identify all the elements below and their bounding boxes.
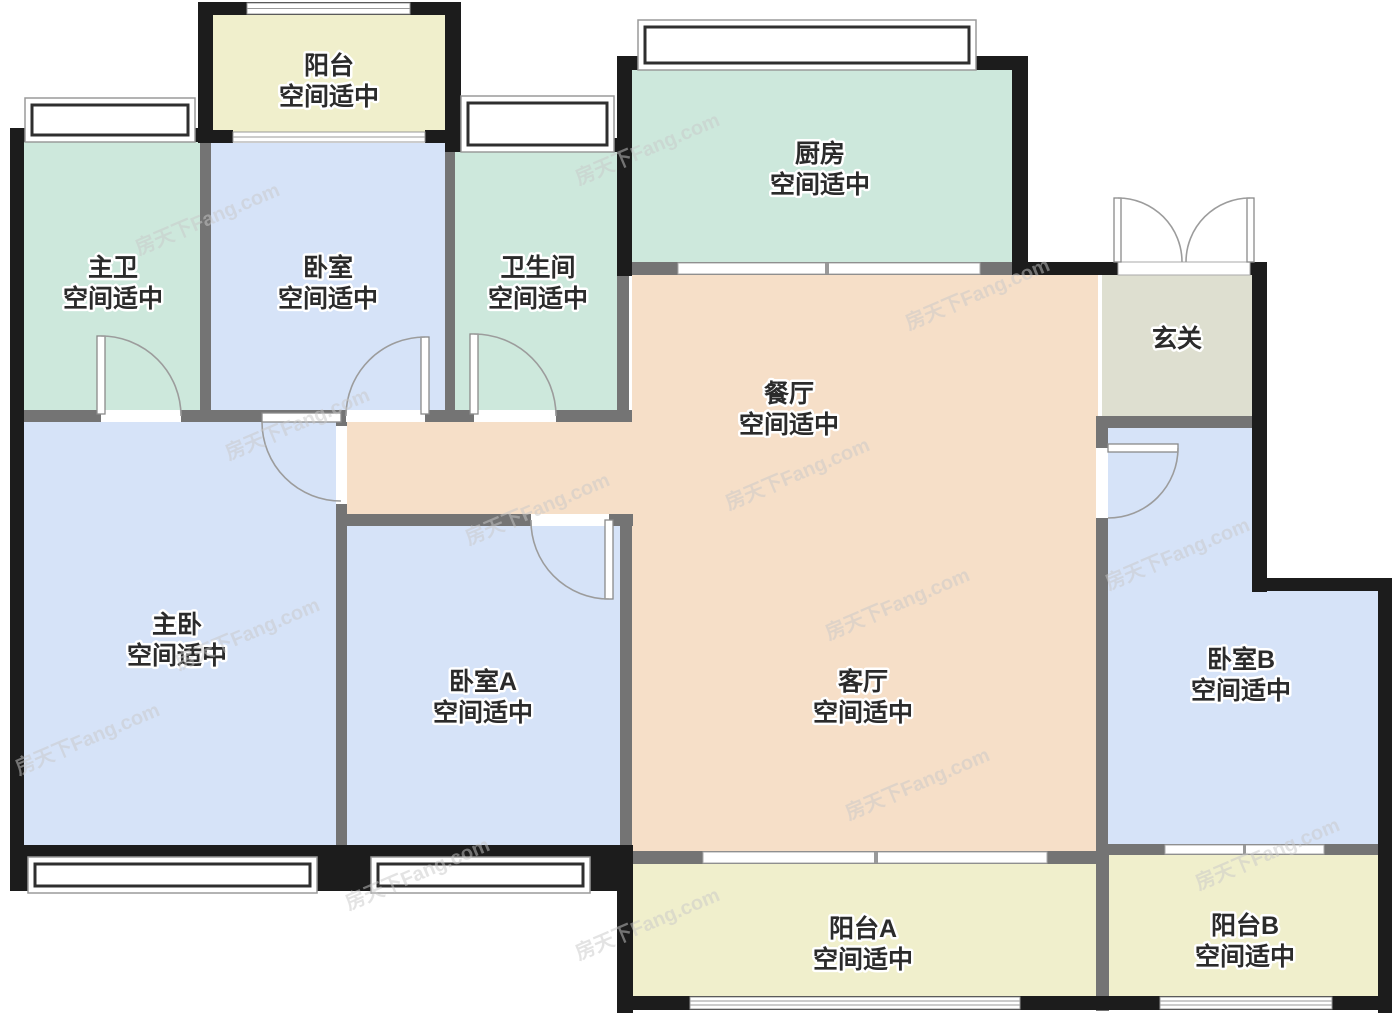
room-label-master-bedroom: 主卧 [152,611,202,639]
door-opening [336,426,347,504]
door-leaf [470,334,478,414]
wall-segment [617,266,629,422]
room-label-balcony-top: 阳台 [304,51,354,80]
door-leaf [97,336,105,414]
room-label-master-bath-status: 空间适中 [63,284,163,313]
room-label-bedroom-top: 卧室 [303,253,353,282]
window [645,27,969,63]
wall-segment [445,152,455,414]
door-opening [101,410,181,422]
wall-segment [425,130,461,143]
room-label-kitchen-status: 空间适中 [770,170,870,199]
wall-segment [1252,262,1267,592]
wall-segment [1012,56,1028,275]
room-label-bedroom-a-status: 空间适中 [433,698,533,727]
wall-segment [315,845,373,891]
room-label-bedroom-a: 卧室A [449,667,517,696]
room-label-living-status: 空间适中 [813,698,913,727]
wall-segment [445,2,461,152]
wall-segment [1096,416,1262,428]
room-label-balcony-top-status: 空间适中 [279,82,379,111]
room-label-living: 客厅 [838,667,888,696]
door-opening [474,410,556,422]
door-leaf [605,520,613,599]
room-bedroom-b-area [1108,428,1378,846]
door-leaf [421,337,429,414]
door-leaf [1108,444,1178,452]
wall-segment [198,2,213,143]
window [690,997,1020,1009]
room-label-dining-status: 空间适中 [739,410,839,439]
sliding-notch [825,263,829,274]
door-opening [346,410,425,422]
room-hallway-area [340,415,632,516]
window [468,103,607,145]
wall-segment [1096,851,1109,1011]
room-label-balcony-b-status: 空间适中 [1195,942,1295,971]
sliding-notch [874,852,878,863]
room-label-kitchen: 厨房 [795,139,845,168]
room-label-master-bath: 主卫 [88,254,138,282]
room-label-foyer: 玄关 [1152,324,1202,353]
wall-segment [200,143,211,414]
room-label-balcony-a: 阳台A [829,914,897,943]
room-label-bedroom-b-status: 空间适中 [1191,676,1291,705]
entry-door-leaf [1247,198,1254,262]
room-label-balcony-b: 阳台B [1211,911,1279,940]
window [35,864,310,886]
floorplan-svg: 阳台 空间适中 主卫 空间适中 卧室 空间适中 卫生间 空间适中 厨房 空间适中… [0,0,1400,1013]
wall-segment [588,845,633,891]
window [1160,997,1332,1009]
room-label-bedroom-b: 卧室B [1207,645,1275,674]
wall-segment [198,130,233,143]
window [32,105,188,135]
wall-segment [620,514,632,854]
entry-door-arc [1186,198,1250,262]
entry-door-leaf [1114,198,1121,262]
room-label-balcony-a-status: 空间适中 [813,945,913,974]
room-label-dining: 餐厅 [764,380,814,408]
room-dining-living-area [632,266,1098,853]
entry-door-arc [1118,198,1182,262]
room-bathroom-area [455,152,617,412]
room-label-bedroom-top-status: 空间适中 [278,284,378,313]
wall-segment [1252,578,1392,591]
room-label-bathroom: 卫生间 [500,254,575,282]
floorplan-canvas: 阳台 空间适中 主卫 空间适中 卧室 空间适中 卫生间 空间适中 厨房 空间适中… [0,0,1400,1013]
door-opening [1096,448,1108,518]
wall-segment [10,128,24,857]
wall-segment [1378,578,1392,1013]
room-label-bathroom-status: 空间适中 [488,284,588,313]
entry-door-opening [1118,262,1250,275]
